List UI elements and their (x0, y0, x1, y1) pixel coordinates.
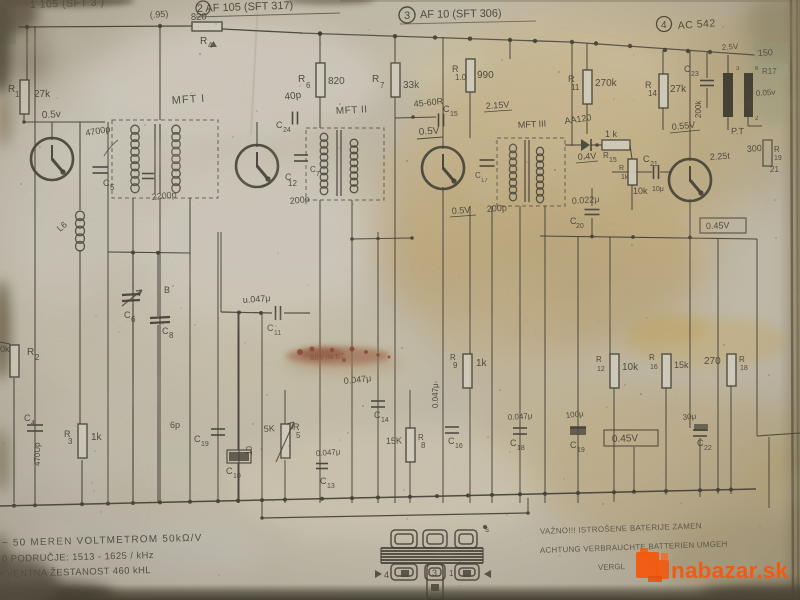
svg-text:nabazar.sk: nabazar.sk (671, 558, 788, 583)
